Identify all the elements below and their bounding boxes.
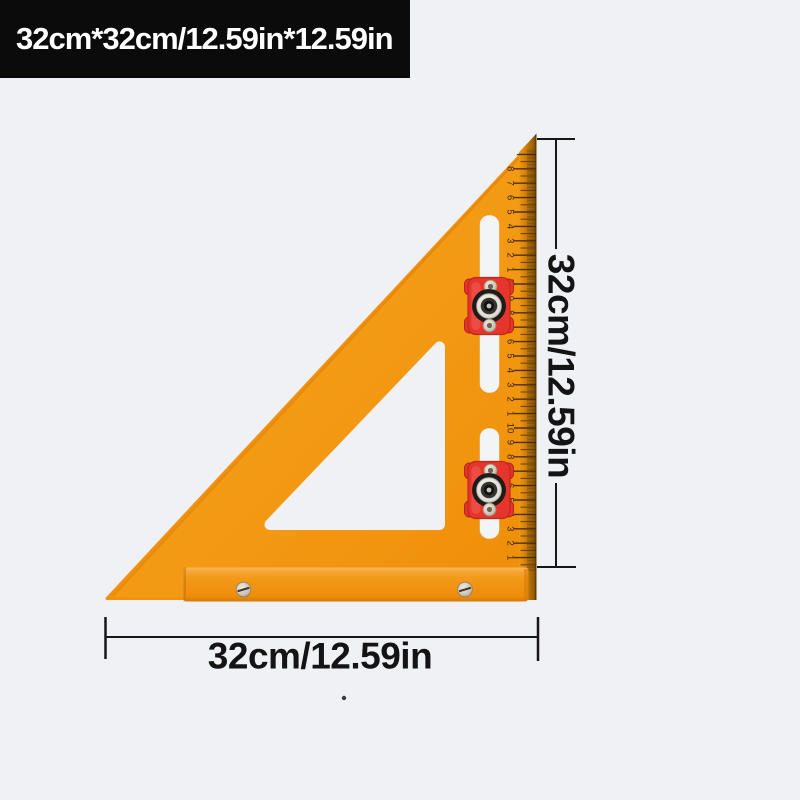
ruler-number: 7 <box>505 181 516 186</box>
slider-screw-bottom <box>483 503 496 516</box>
right-dimension-label: 32cm/12.59in <box>541 254 582 478</box>
ruler-number: 3 <box>505 526 516 531</box>
slider-stop-top <box>465 278 514 335</box>
ruler-number: 4 <box>505 368 516 373</box>
ruler-number: 1 <box>505 411 516 416</box>
ruler-number: 5 <box>505 209 516 214</box>
ruler-number: 6 <box>505 339 516 344</box>
ruler-number: 1 <box>505 267 516 272</box>
ruler-number: 5 <box>505 353 516 358</box>
ruler-number: 6 <box>505 195 516 200</box>
ruler-number: 4 <box>505 224 516 229</box>
bar-screw-left <box>236 582 251 597</box>
bar-screw-right <box>458 582 473 597</box>
ruler-number: 8 <box>505 166 516 171</box>
product-image: 32cm*32cm/12.59in*12.59in <box>0 0 800 800</box>
ruler-number: 3 <box>505 238 516 243</box>
speck-dot <box>342 696 346 700</box>
slider-screw-bottom <box>483 319 496 332</box>
base-bar <box>184 568 529 602</box>
ruler-number: 2 <box>505 253 516 258</box>
slider-knob-bottom <box>472 473 506 507</box>
ruler-number: 8 <box>505 454 516 459</box>
ruler-number: 2 <box>505 397 516 402</box>
bottom-dimension-label: 32cm/12.59in <box>208 636 432 677</box>
ruler-illustration: 123456789101234567892012345678 <box>0 0 800 800</box>
ruler-number: 1 <box>505 555 516 560</box>
ruler-number: 9 <box>505 440 516 445</box>
ruler-number: 10 <box>505 423 516 434</box>
slider-knob-top <box>472 289 506 323</box>
slider-stop-bottom <box>465 462 514 519</box>
ruler-number: 2 <box>505 541 516 546</box>
ruler-number: 3 <box>505 382 516 387</box>
